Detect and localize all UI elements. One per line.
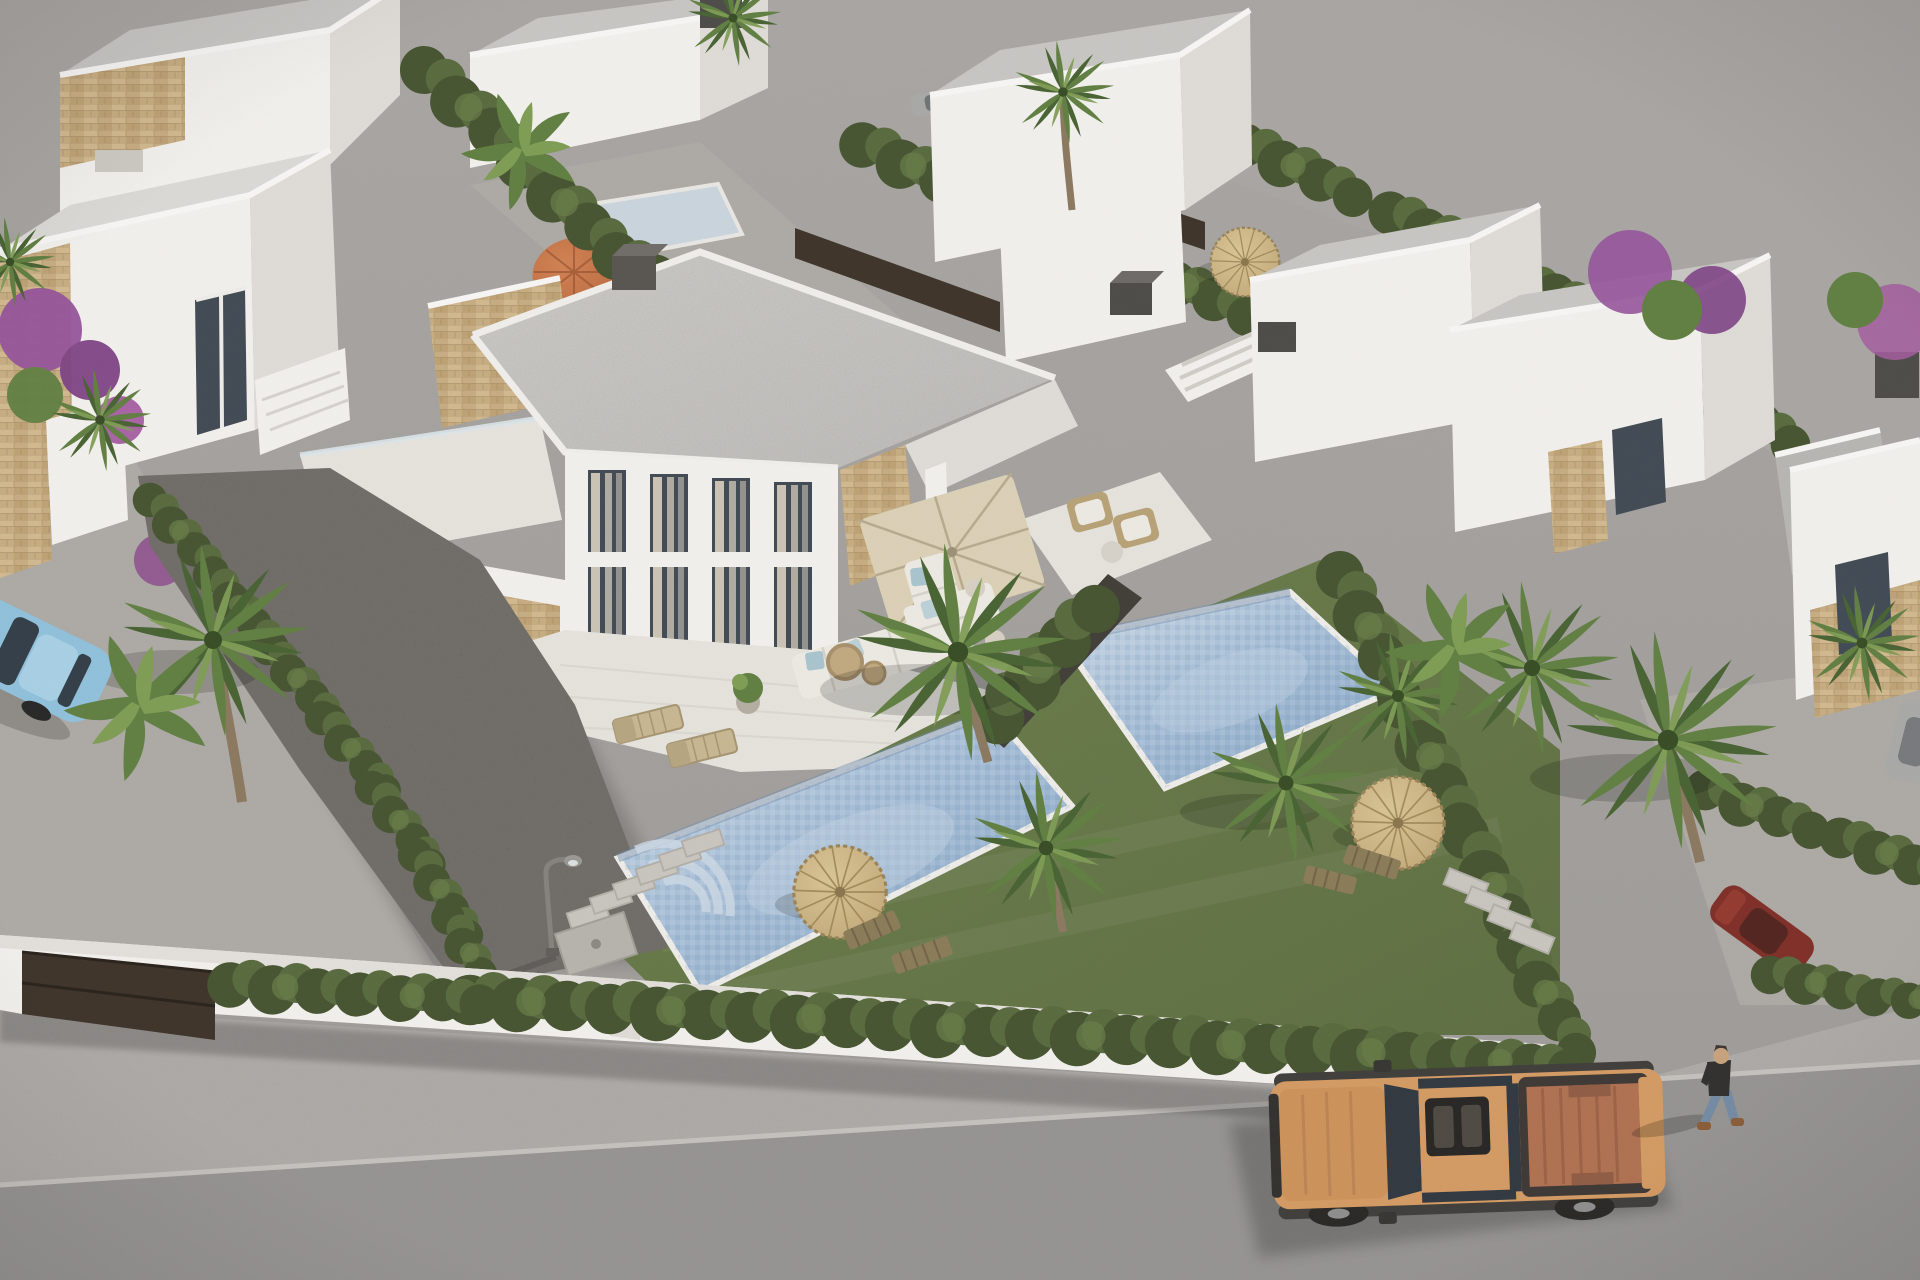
vignette <box>0 0 1920 1280</box>
villa-development-render: Aerial view of a modern white villa deve… <box>0 0 1920 1280</box>
render-viewport: Aerial view of a modern white villa deve… <box>0 0 1920 1280</box>
